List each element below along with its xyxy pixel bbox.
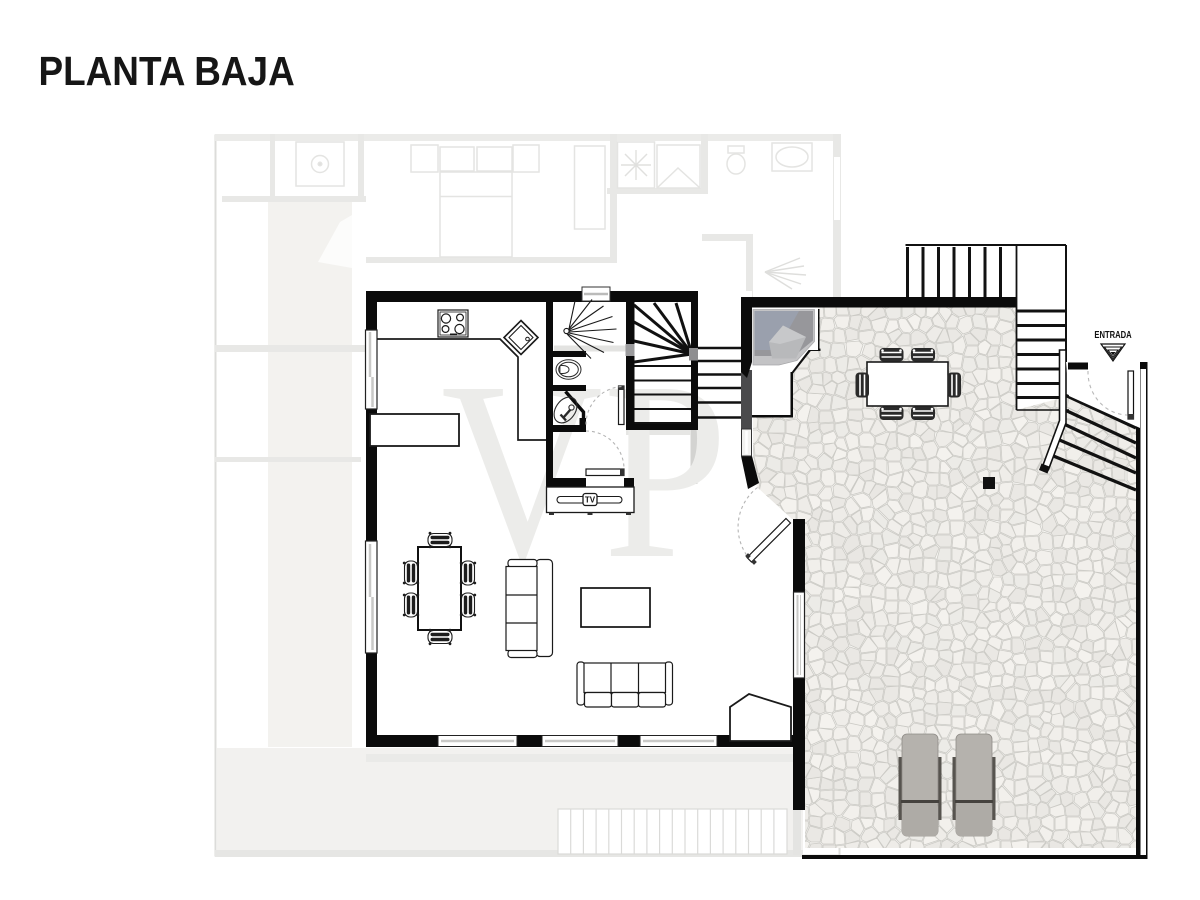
svg-text:ENTRADA: ENTRADA [1094,329,1132,340]
svg-text:TV: TV [585,496,596,505]
svg-text:PLANTA BAJA: PLANTA BAJA [39,49,295,94]
svg-text:VP: VP [441,329,728,611]
